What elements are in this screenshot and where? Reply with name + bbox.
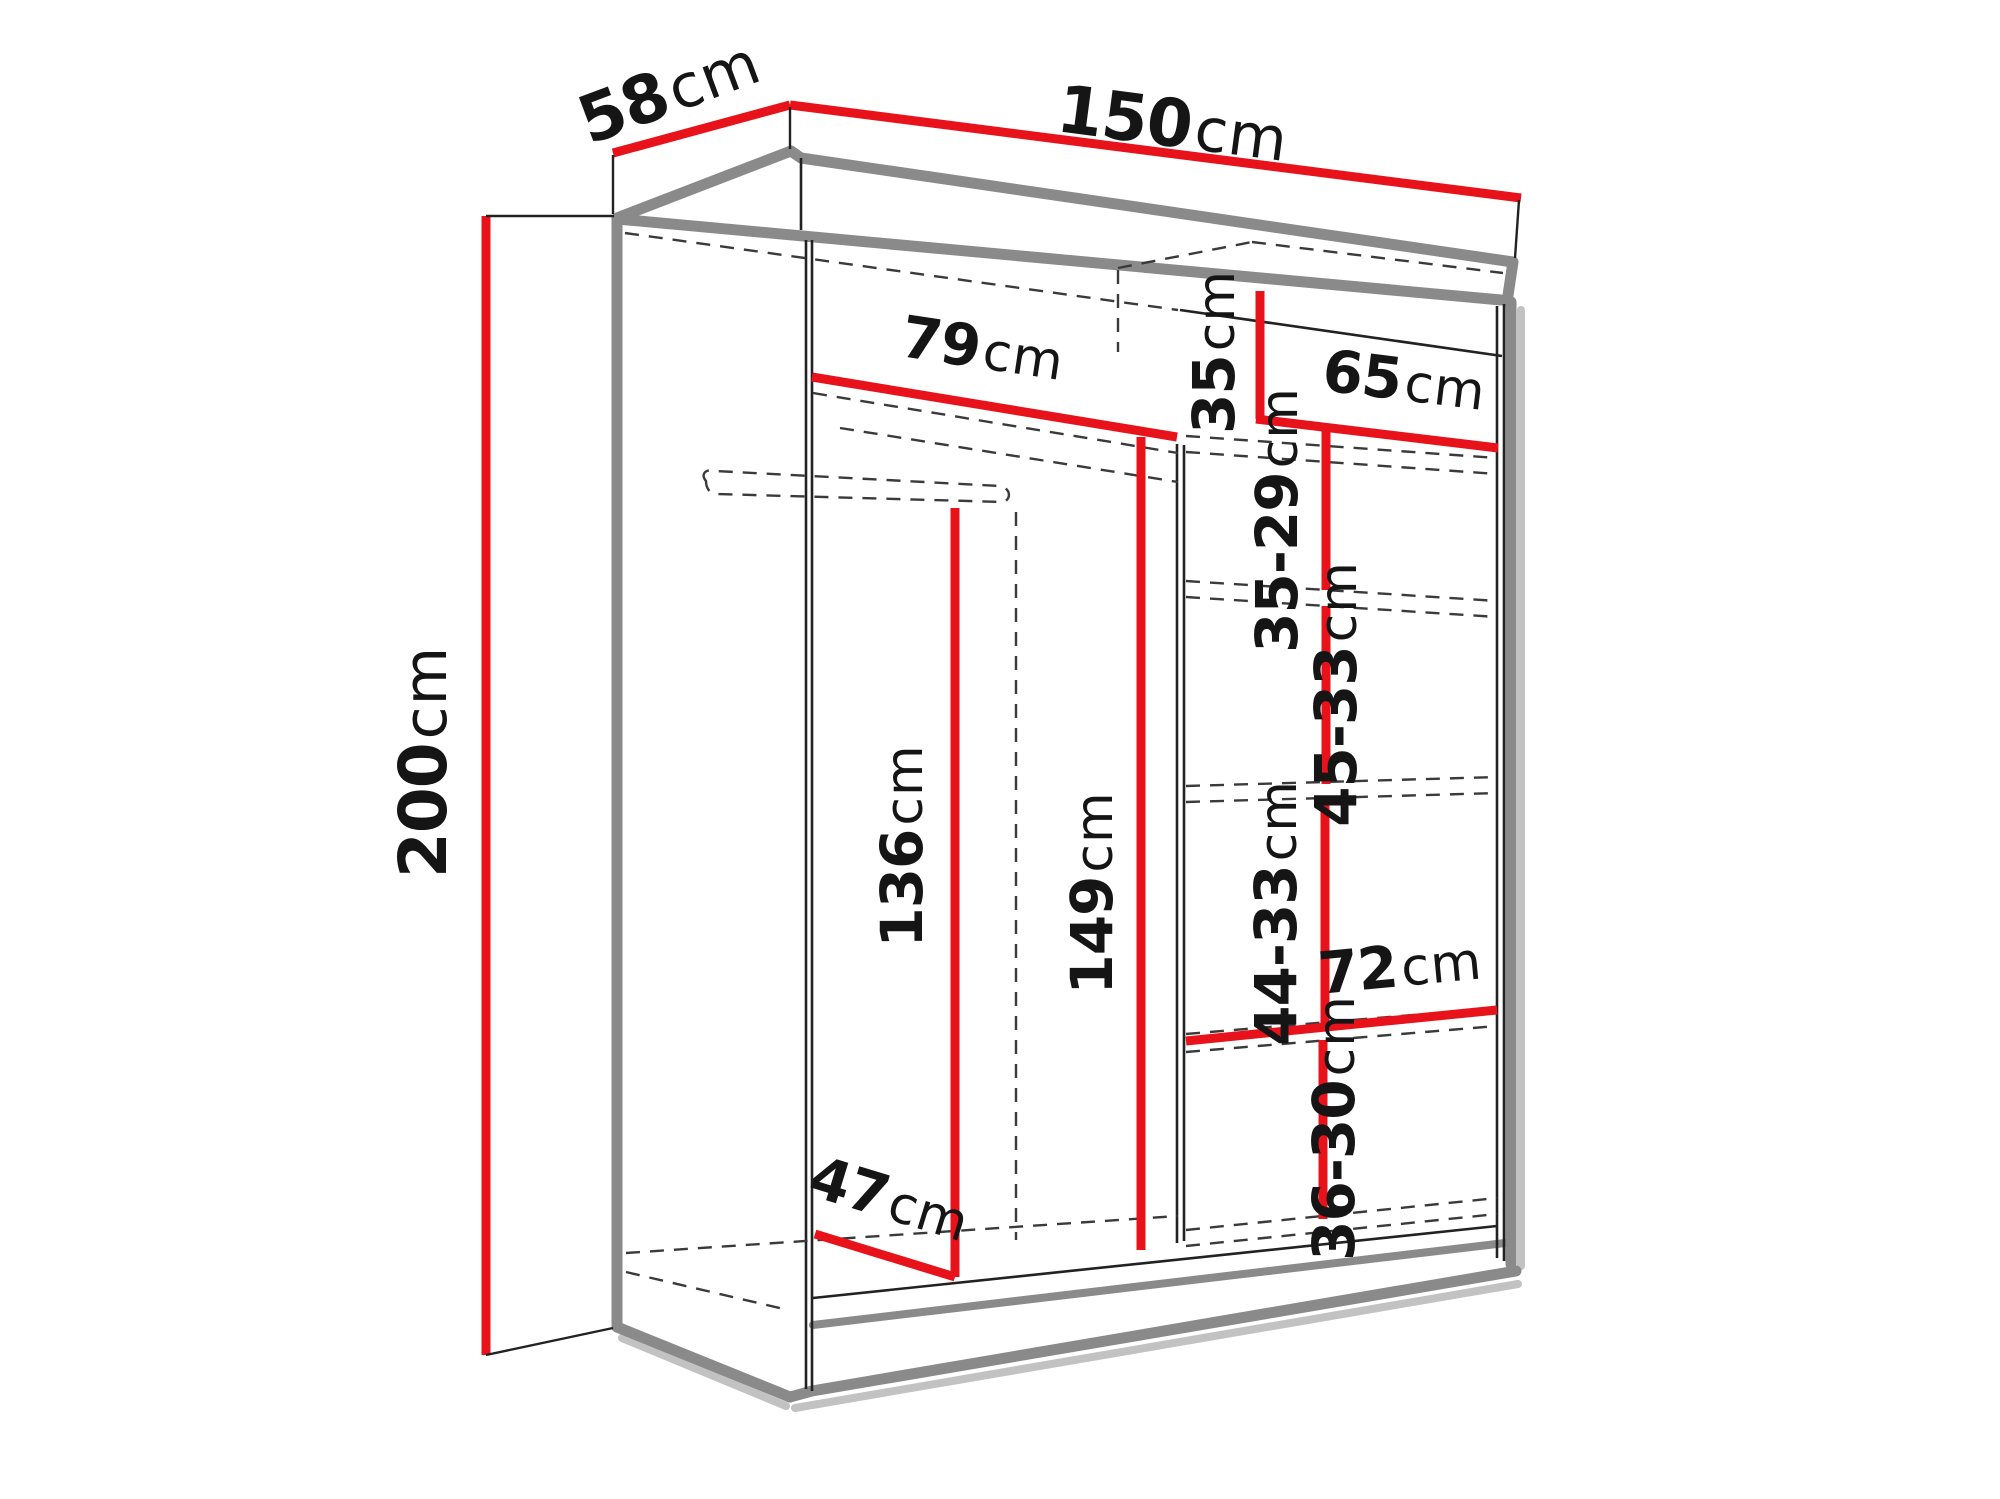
left-bottom-edge (617, 1327, 790, 1397)
crown-right-step (1507, 262, 1513, 302)
bottom-left-shadow (622, 1338, 786, 1406)
label-35-29: 35-29cm (1243, 387, 1311, 653)
label-79: 79cm (897, 302, 1069, 393)
label-136: 136cm (868, 744, 936, 947)
label-45-33: 45-33cm (1302, 561, 1370, 827)
left-top-shelf-front-dashed (813, 393, 1178, 453)
witness-150-right (1515, 200, 1519, 258)
dim-line-79 (812, 377, 1177, 437)
floor-left-depth-dashed (626, 1272, 788, 1310)
label-height-200: 200cm (385, 646, 462, 878)
dimension-labels: 58cm 150cm 200cm 79cm 35cm 65cm 35-29cm … (385, 22, 1490, 1261)
left-top-shelf-back-dashed (840, 428, 1178, 482)
crown-left-top-edge (617, 151, 791, 218)
label-width-150: 150cm (1053, 70, 1293, 177)
label-149: 149cm (1058, 791, 1126, 994)
plinth-top-edge (813, 1243, 1505, 1325)
label-44-33: 44-33cm (1242, 780, 1310, 1046)
bottom-shadow (795, 1284, 1518, 1408)
crown-bottom-edge (617, 219, 1501, 300)
label-36-30: 36-30cm (1300, 995, 1368, 1261)
diagram-canvas: 58cm 150cm 200cm 79cm 35cm 65cm 35-29cm … (0, 0, 2000, 1499)
witness-200-bottom (486, 1328, 613, 1355)
hanging-rail-dashed (704, 470, 1009, 502)
label-35: 35cm (1180, 270, 1248, 434)
wardrobe-dimension-diagram: 58cm 150cm 200cm 79cm 35cm 65cm 35-29cm … (0, 0, 2000, 1499)
